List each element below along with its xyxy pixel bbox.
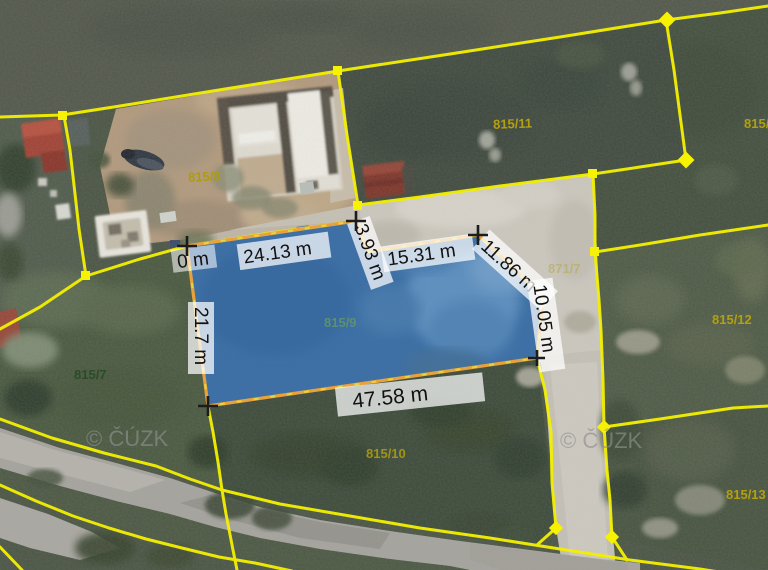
svg-text:815/8: 815/8 [188,168,221,184]
svg-text:0 m: 0 m [176,248,210,273]
svg-text:815/10: 815/10 [366,446,406,461]
svg-text:815/9: 815/9 [324,315,357,330]
svg-text:© ČÚZK: © ČÚZK [560,428,643,453]
svg-text:871/7: 871/7 [548,261,581,276]
svg-text:21.7 m: 21.7 m [190,307,211,365]
svg-text:815/7: 815/7 [74,367,107,382]
svg-text:815/11: 815/11 [493,115,533,131]
svg-text:815/: 815/ [744,116,768,131]
svg-text:© ČÚZK: © ČÚZK [86,426,169,451]
svg-text:815/12: 815/12 [712,312,752,327]
svg-text:815/13: 815/13 [726,487,766,502]
